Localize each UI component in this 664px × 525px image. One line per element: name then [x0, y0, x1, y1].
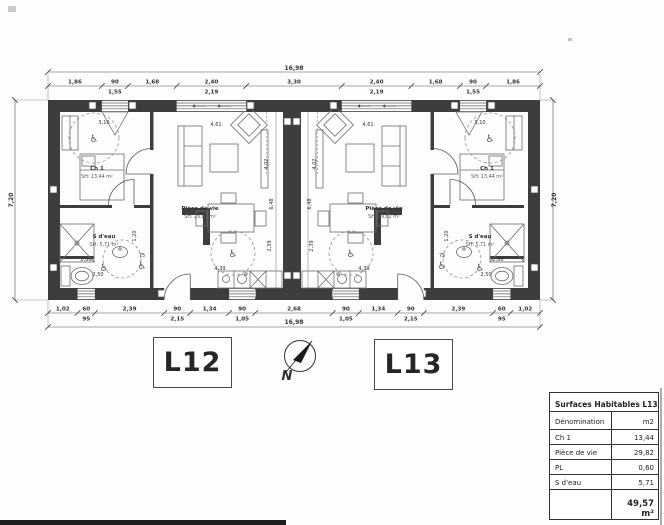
dim-label: 95 [82, 317, 90, 323]
row-name: Ch 1 [550, 430, 612, 444]
dim-label: 2,40 [370, 80, 384, 86]
interior-dim-label: 4,39 [358, 266, 369, 272]
room-area-label: SH: 13,44 m² [471, 174, 503, 180]
wheelchair-icon: ♿ [90, 134, 99, 145]
north-label: N [282, 369, 293, 384]
total-label-cell [550, 490, 612, 519]
interior-dim-label: 2,86 [492, 257, 503, 263]
wardrobe [62, 116, 78, 150]
dim-label: 2,39 [452, 307, 466, 313]
room-area-label: SH: 5,71 m² [466, 242, 495, 248]
table-row: S d'eau5,71 [550, 475, 658, 490]
wheelchair-icon: ♿ [347, 249, 356, 260]
room-name-label: Pièce de vie [181, 205, 219, 212]
dim-label: 95 [498, 317, 506, 323]
room-name-label: S d'eau [469, 234, 492, 240]
interior-dim-label: 1,20 [444, 230, 450, 241]
dim-label: 60 [82, 307, 90, 313]
interior-dim-label: 4,61 [210, 122, 221, 128]
unit-label-l13: L13 [374, 339, 453, 390]
dim-label: 1,86 [68, 80, 82, 86]
dim-label: 90 [407, 307, 415, 313]
interior-dim-label: 3,10 [98, 120, 109, 126]
overall-width-label: 16,98 [285, 65, 304, 72]
dim-label: 2,39 [123, 307, 137, 313]
armchair [231, 107, 268, 144]
dim-label: 1,05 [235, 317, 249, 323]
interior-dim-label: 4,02 [264, 158, 270, 169]
row-name: S d'eau [550, 475, 612, 489]
room-area-label: SH: 29,82 m² [368, 214, 400, 220]
dim-label: 1,68 [145, 80, 159, 86]
room-name-label: Ch 1 [90, 166, 104, 172]
dim-label: 1,05 [339, 317, 353, 323]
surfaces-table-header: Dénomination m2 [550, 412, 658, 430]
dim-label: 2,68 [287, 307, 301, 313]
wheelchair-icon: ♿ [476, 263, 485, 274]
room-name-label: Ch 1 [480, 166, 494, 172]
overall-height-label: 7,20 [8, 193, 15, 208]
dim-label: 1,34 [371, 307, 385, 313]
interior-dim-label: 75 [439, 253, 445, 259]
table-row: Pièce de vie29,82 [550, 445, 658, 460]
sofa [178, 126, 202, 186]
row-value: 0,60 [612, 460, 658, 474]
overall-width-label: 16,98 [285, 319, 304, 326]
surfaces-table-title: Surfaces Habitables L13 [550, 393, 658, 412]
wheelchair-icon: ♿ [438, 261, 447, 272]
interior-dim-label: 4,39 [214, 266, 225, 272]
wheelchair-icon: ♿ [100, 263, 109, 274]
interior-dim-label: 4,02 [312, 158, 318, 169]
dim-label: 2,40 [205, 80, 219, 86]
surfaces-rows: Ch 113,44Pièce de vie29,82PL0,60S d'eau5… [550, 430, 658, 490]
surfaces-table: Surfaces Habitables L13 Dénomination m2 … [549, 392, 659, 520]
surfaces-table-total-row: 49,57 m² [550, 490, 658, 519]
table-row: PL0,60 [550, 460, 658, 475]
dim-label: 90 [238, 307, 246, 313]
dim-label: 90 [173, 307, 181, 313]
room-area-label: SH: 5,71 m² [90, 242, 119, 248]
dim-label: 2,19 [370, 90, 384, 96]
coffee-table [210, 144, 238, 172]
dim-label: 1,34 [203, 307, 217, 313]
dim-label: 2,19 [205, 90, 219, 96]
row-name: PL [550, 460, 612, 474]
dim-label: 1,55 [466, 90, 480, 96]
wheelchair-icon: ♿ [138, 261, 147, 272]
unit-label-l12: L12 [153, 337, 232, 388]
interior-dim-label: 6,48 [269, 198, 275, 209]
dim-label: 90 [469, 80, 477, 86]
interior-dim-label: 75 [139, 253, 145, 259]
dim-label: 1,55 [108, 90, 122, 96]
interior-dim-label: 2,39 [267, 240, 273, 251]
wheelchair-icon: ♿ [229, 249, 238, 260]
toilet [61, 266, 93, 286]
dim-label: 90 [342, 307, 350, 313]
dim-label: 1,86 [506, 80, 520, 86]
interior-dim-label: 6,48 [307, 198, 313, 209]
overall-height-label: 7,20 [551, 193, 558, 208]
dim-label: 60 [498, 307, 506, 313]
interior-dim-label: 4,61 [362, 122, 373, 128]
interior-dim-label: 1,20 [132, 230, 138, 241]
row-value: 29,82 [612, 445, 658, 459]
room-name-label: S d'eau [93, 234, 116, 240]
dim-label: 2,15 [404, 317, 418, 323]
col-unit: m2 [612, 412, 658, 429]
washbasin [113, 247, 128, 258]
door-swings [109, 149, 152, 206]
dim-label: 1,02 [56, 307, 70, 313]
table-row: Ch 113,44 [550, 430, 658, 445]
dim-label: 3,30 [287, 80, 301, 86]
dim-label: 1,02 [518, 307, 532, 313]
wheelchair-icon: ♿ [486, 134, 495, 145]
dim-label: 90 [111, 80, 119, 86]
dim-label: 1,68 [429, 80, 443, 86]
row-value: 5,71 [612, 475, 658, 489]
kitchen-counter [218, 271, 282, 288]
room-area-label: SH: 13,44 m² [81, 174, 113, 180]
total-value: 49,57 m² [612, 490, 658, 519]
interior-dim-label: 2,86 [80, 257, 91, 263]
row-name: Pièce de vie [550, 445, 612, 459]
floor-plan-page: 1,86901,551,682,402,193,302,402,191,6890… [0, 0, 664, 525]
north-compass [285, 341, 316, 373]
row-value: 13,44 [612, 430, 658, 444]
room-name-label: Pièce de vie [365, 205, 403, 212]
dim-label: 2,15 [170, 317, 184, 323]
interior-dim-label: 3,10 [474, 120, 485, 126]
col-denomination: Dénomination [550, 412, 612, 429]
room-area-label: SH: 29,82 m² [184, 214, 216, 220]
interior-dim-label: 2,39 [309, 240, 315, 251]
